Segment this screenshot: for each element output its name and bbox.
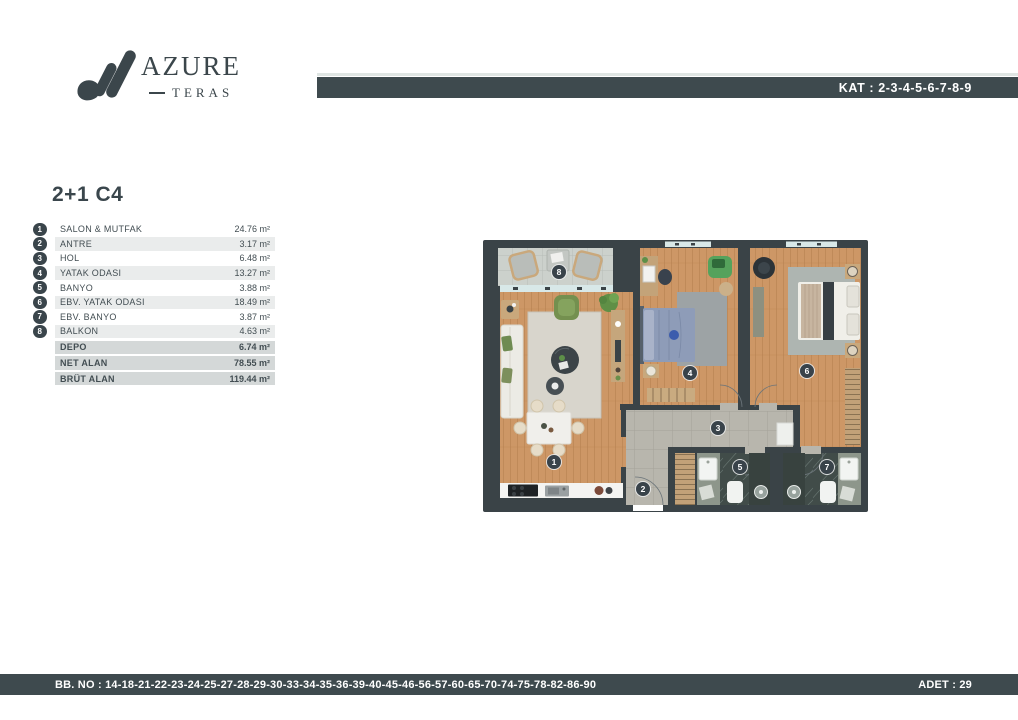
table-row: 3 HOL 6.48 m² (30, 251, 275, 266)
unit-numbers-bar: BB. NO : 14-18-21-22-23-24-25-27-28-29-3… (0, 674, 1018, 695)
summary-rows: DEPO 6.74 m² NET ALAN 78.55 m² BRÜT (30, 340, 275, 386)
room-area: 24.76 m² (234, 224, 270, 234)
azure-logo-icon (72, 42, 138, 108)
svg-text:6: 6 (805, 366, 810, 376)
room-label: ANTRE (60, 239, 92, 249)
room-number-badge: 5 (33, 281, 47, 295)
summary-row: DEPO 6.74 m² (30, 340, 275, 355)
room-number-badge: 7 (33, 310, 47, 324)
badge-living-room: 1 (547, 455, 562, 470)
svg-text:8: 8 (557, 267, 562, 277)
summary-area: 78.55 m² (234, 358, 270, 368)
room-rows: 1 SALON & MUTFAK 24.76 m² 2 ANTRE 3.17 m… (30, 222, 275, 339)
brand-subtitle: TERAS (149, 85, 233, 101)
entrance-opening (633, 505, 663, 511)
unit-title: 2+1 C4 (52, 183, 123, 207)
table-row: 2 ANTRE 3.17 m² (30, 237, 275, 252)
badge-entry: 2 (636, 482, 651, 497)
room-number-badge: 1 (33, 223, 47, 237)
badge-bathroom: 5 (733, 460, 748, 475)
table-row: 7 EBV. BANYO 3.87 m² (30, 310, 275, 325)
hall-cabinet (777, 423, 793, 445)
brand-name: AZURE (141, 51, 241, 82)
table-row: 8 BALKON 4.63 m² (30, 324, 275, 339)
room-area: 4.63 m² (239, 326, 270, 336)
room-area: 6.48 m² (239, 253, 270, 263)
summary-label: DEPO (60, 342, 87, 352)
badge-bedroom: 4 (683, 366, 698, 381)
room-number-badge: 4 (33, 266, 47, 280)
table-row: 4 YATAK ODASI 13.27 m² (30, 266, 275, 281)
svg-text:3: 3 (716, 423, 721, 433)
badge-balcony: 8 (552, 265, 567, 280)
summary-area: 6.74 m² (239, 342, 270, 352)
room-label: SALON & MUTFAK (60, 224, 142, 234)
wardrobe (845, 368, 860, 445)
room-label: BANYO (60, 283, 93, 293)
room-area: 13.27 m² (234, 268, 270, 278)
svg-text:7: 7 (825, 462, 830, 472)
badge-hall: 3 (711, 421, 726, 436)
summary-label: NET ALAN (60, 358, 108, 368)
summary-area: 119.44 m² (229, 374, 270, 384)
summary-row: NET ALAN 78.55 m² (30, 356, 275, 371)
unit-count: ADET : 29 (918, 679, 972, 691)
topbar-accent-line (317, 73, 1018, 76)
room-label: YATAK ODASI (60, 268, 121, 278)
summary-label: BRÜT ALAN (60, 374, 115, 384)
svg-text:2: 2 (641, 484, 646, 494)
brochure-page: AZURE TERAS KAT : 2-3-4-5-6-7-8-9 2+1 C4… (0, 0, 1018, 720)
unit-numbers: BB. NO : 14-18-21-22-23-24-25-27-28-29-3… (55, 679, 596, 691)
room-label: EBV. YATAK ODASI (60, 297, 145, 307)
room-area: 3.88 m² (239, 283, 270, 293)
room-number-badge: 8 (33, 325, 47, 339)
table-row: 1 SALON & MUTFAK 24.76 m² (30, 222, 275, 237)
room-area: 3.17 m² (239, 239, 270, 249)
room-area-table: 1 SALON & MUTFAK 24.76 m² 2 ANTRE 3.17 m… (30, 222, 275, 386)
svg-text:1: 1 (552, 457, 557, 467)
room-label: HOL (60, 253, 79, 263)
floor-numbers: KAT : 2-3-4-5-6-7-8-9 (839, 81, 972, 95)
room-label: BALKON (60, 326, 98, 336)
room-number-badge: 2 (33, 237, 47, 251)
table-row: 6 EBV. YATAK ODASI 18.49 m² (30, 295, 275, 310)
floor-info-bar: KAT : 2-3-4-5-6-7-8-9 (317, 77, 1018, 98)
table-row: 5 BANYO 3.88 m² (30, 280, 275, 295)
svg-text:5: 5 (738, 462, 743, 472)
kitchen-counter (500, 483, 623, 498)
badge-master-bedroom: 6 (800, 364, 815, 379)
summary-row: BRÜT ALAN 119.44 m² (30, 372, 275, 387)
room-number-badge: 3 (33, 252, 47, 266)
shoe-cabinet (675, 453, 695, 505)
brand-dash (149, 92, 165, 94)
room-number-badge: 6 (33, 296, 47, 310)
badge-master-bathroom: 7 (820, 460, 835, 475)
svg-text:4: 4 (688, 368, 693, 378)
room-area: 3.87 m² (239, 312, 270, 322)
floor-plan: 1 2 3 4 5 6 7 8 (483, 240, 868, 512)
room-area: 18.49 m² (234, 297, 270, 307)
room-label: EBV. BANYO (60, 312, 117, 322)
